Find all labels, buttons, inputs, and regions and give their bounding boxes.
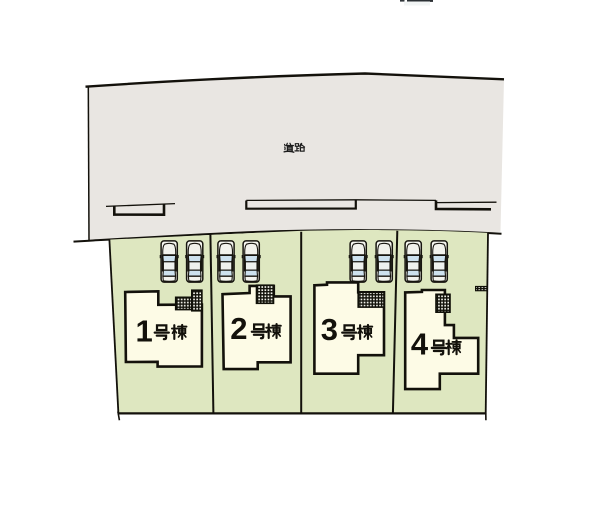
svg-text:4: 4 (411, 327, 429, 362)
svg-text:3: 3 (321, 312, 338, 347)
svg-text:1: 1 (136, 313, 153, 348)
svg-text:2: 2 (230, 311, 247, 346)
